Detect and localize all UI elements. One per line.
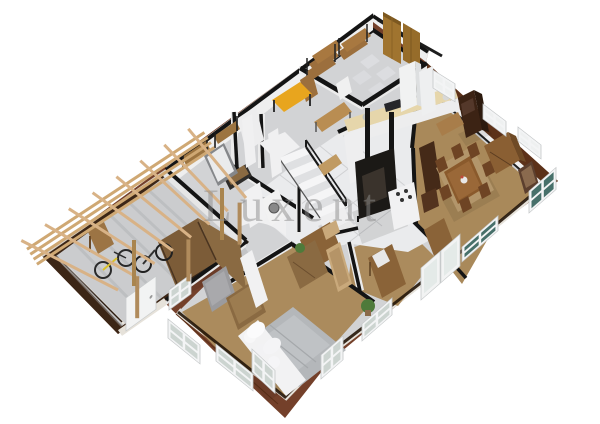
svg-text:Luxent: Luxent	[203, 180, 384, 232]
